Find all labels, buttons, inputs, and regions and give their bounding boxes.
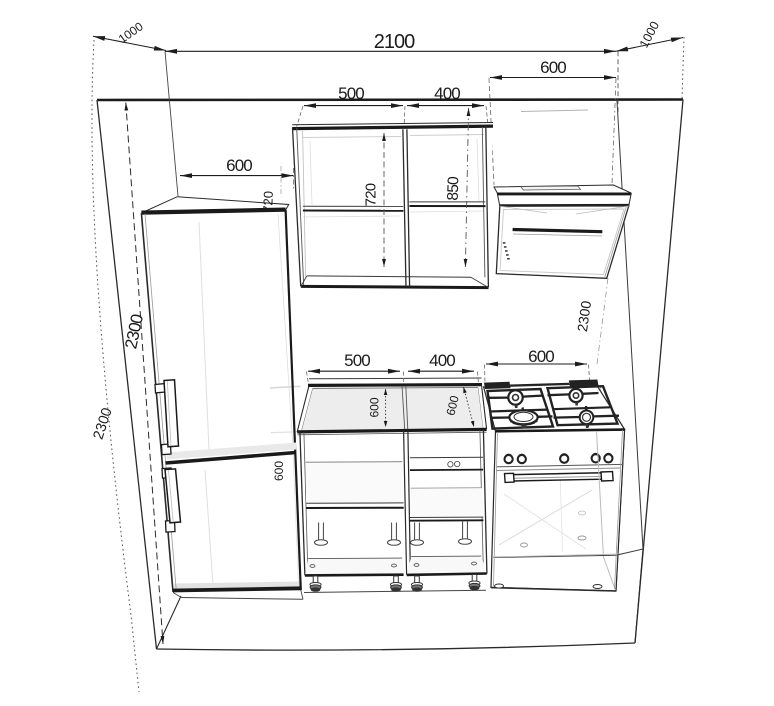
svg-text:400: 400 xyxy=(434,84,460,103)
svg-text:720: 720 xyxy=(363,183,380,206)
svg-text:500: 500 xyxy=(338,84,364,103)
svg-text:600: 600 xyxy=(272,461,286,481)
svg-text:500: 500 xyxy=(344,351,370,370)
svg-text:850: 850 xyxy=(445,176,463,201)
svg-text:720: 720 xyxy=(260,191,276,213)
svg-text:600: 600 xyxy=(226,156,252,175)
svg-text:2100: 2100 xyxy=(374,31,415,53)
svg-text:600: 600 xyxy=(528,347,554,366)
svg-text:600: 600 xyxy=(540,58,566,77)
svg-text:400: 400 xyxy=(429,351,455,370)
svg-text:600: 600 xyxy=(368,397,382,417)
